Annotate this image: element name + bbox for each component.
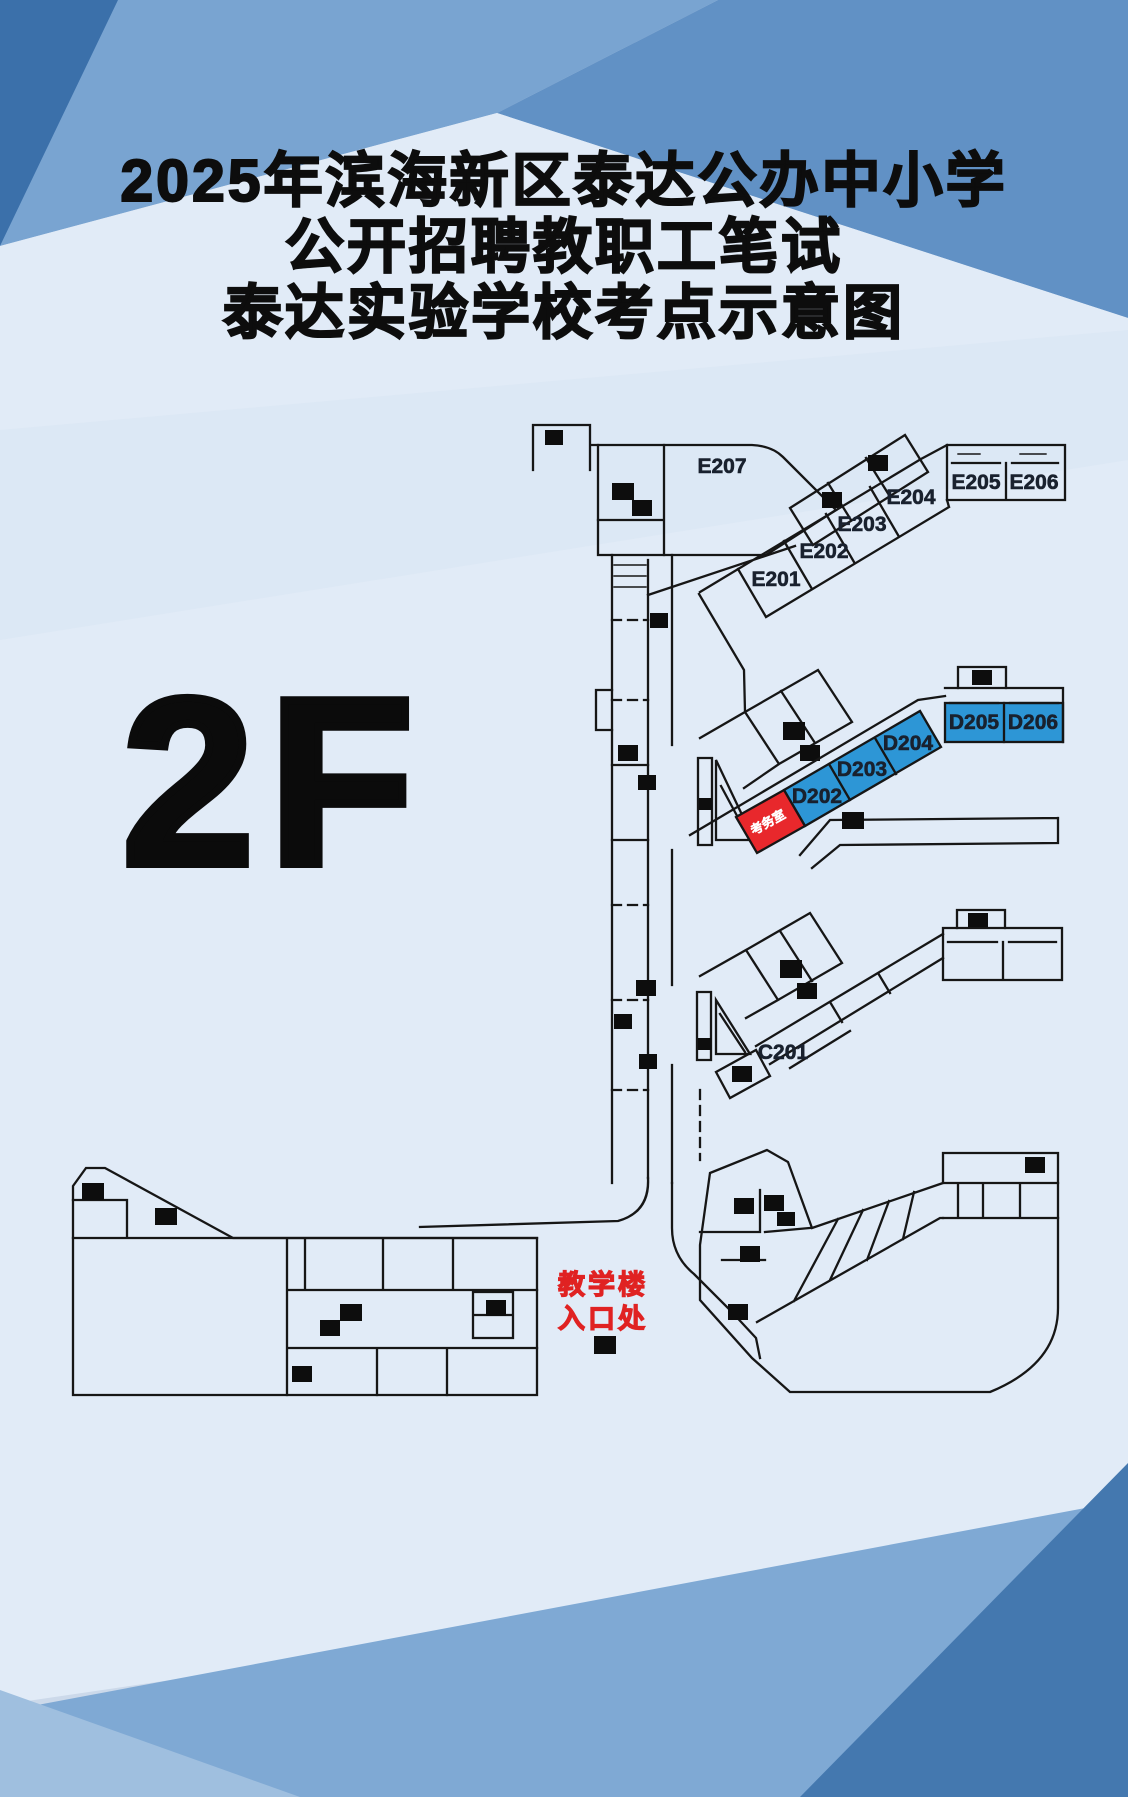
room-label-d202: D202	[792, 785, 842, 808]
passage-left-curve	[420, 1178, 648, 1227]
entrance-label-line-2: 入口处	[528, 1302, 678, 1336]
title-line-3: 泰达实验学校考点示意图	[0, 280, 1128, 346]
bottom-left-building	[73, 1168, 537, 1395]
door-marker	[1025, 1157, 1045, 1173]
door-marker	[842, 812, 864, 829]
c-wing	[697, 910, 1062, 1098]
entrance-label: 教学楼 入口处	[528, 1268, 678, 1336]
wing-diagonal-rooms	[757, 1192, 943, 1322]
door-marker	[618, 745, 638, 761]
door-marker	[486, 1300, 506, 1316]
room-label-e203: E203	[837, 513, 886, 536]
cluster-walls	[699, 594, 852, 788]
room-label-e205: E205	[951, 471, 1000, 494]
d-c-connector	[800, 812, 1058, 868]
room-label-e204: E204	[886, 486, 935, 509]
door-marker	[797, 983, 817, 999]
connector-walls	[800, 818, 1058, 868]
room-label-e201: E201	[751, 568, 800, 591]
door-marker	[639, 1054, 657, 1069]
c-cluster-walls	[700, 913, 842, 1018]
title-line-1: 2025年滨海新区泰达公办中小学	[0, 148, 1128, 214]
door-marker	[155, 1208, 177, 1225]
room-label-d204: D204	[883, 732, 934, 755]
door-marker	[968, 913, 988, 927]
poster-title: 2025年滨海新区泰达公办中小学 公开招聘教职工笔试 泰达实验学校考点示意图	[0, 148, 1128, 346]
exam-site-poster: E207 E201 E202 E203 E204 E205 E206 D202 …	[0, 0, 1128, 1797]
door-marker	[638, 775, 656, 790]
stair-hatch	[614, 565, 646, 587]
door-marker	[822, 492, 842, 508]
door-marker	[82, 1183, 104, 1200]
c-box-walls	[943, 928, 1062, 980]
door-marker	[780, 960, 802, 978]
door-marker	[320, 1320, 340, 1336]
corridor-walls	[612, 555, 672, 1183]
door-marker	[732, 1066, 752, 1082]
door-marker	[783, 722, 805, 740]
door-marker	[728, 1304, 748, 1320]
door-marker	[545, 430, 563, 445]
door-marker	[734, 1198, 754, 1214]
floor-label: 2F	[122, 664, 428, 902]
door-marker	[650, 613, 668, 628]
e207-appendix	[533, 425, 598, 470]
room-label-e207: E207	[697, 455, 746, 478]
door-marker	[868, 455, 888, 471]
door-marker	[777, 1212, 795, 1226]
door-marker	[292, 1366, 312, 1382]
wing-outline	[700, 1150, 1058, 1392]
door-marker	[632, 500, 652, 516]
central-vertical-corridor	[596, 555, 672, 1183]
bottom-right-wing	[700, 1150, 1058, 1392]
wing-top-room-row	[943, 1183, 1058, 1218]
door-marker	[612, 483, 634, 500]
door-marker	[764, 1195, 784, 1211]
door-marker	[699, 798, 712, 810]
room-label-e206: E206	[1009, 471, 1058, 494]
door-marker	[636, 980, 656, 996]
building-interior-walls	[73, 1200, 537, 1395]
room-label-c201: C201	[758, 1041, 809, 1064]
room-label-d205: D205	[949, 711, 1000, 734]
entrance-label-line-1: 教学楼	[528, 1268, 678, 1302]
corridor-notch	[596, 690, 648, 840]
entrance-door-marker	[594, 1336, 616, 1354]
door-marker	[698, 1038, 711, 1050]
room-label-e202: E202	[799, 540, 848, 563]
door-marker	[614, 1014, 632, 1029]
title-line-2: 公开招聘教职工笔试	[0, 214, 1128, 280]
room-label-d206: D206	[1008, 711, 1058, 734]
door-marker	[740, 1246, 760, 1262]
door-marker	[340, 1304, 362, 1321]
door-marker	[972, 670, 992, 685]
room-label-d203: D203	[837, 758, 887, 781]
